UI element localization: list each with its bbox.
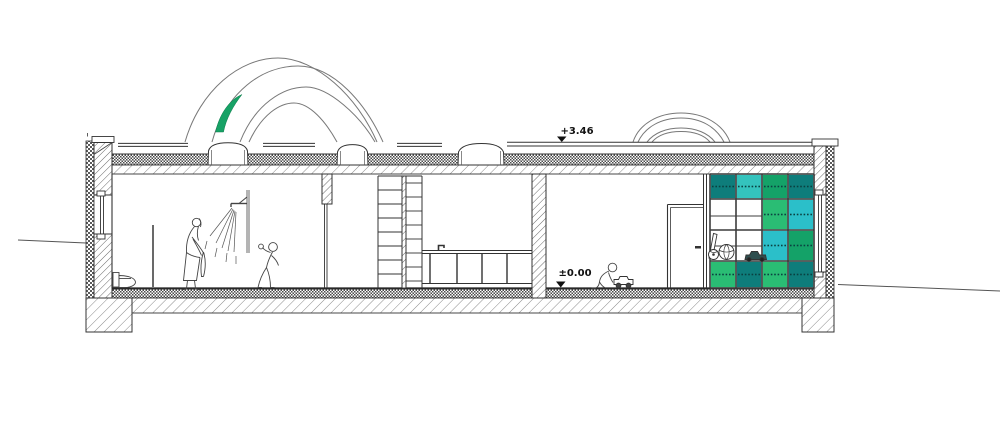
shelf-cell-dot xyxy=(793,245,795,247)
partition-1 xyxy=(322,174,332,288)
toilet xyxy=(113,273,136,288)
shelf-cell-dot xyxy=(804,245,806,247)
shelf-cell-dot xyxy=(726,274,728,276)
right-window xyxy=(815,190,823,277)
shelf-cell-dot xyxy=(715,186,717,188)
kitchen-counter xyxy=(422,246,532,289)
vault-arcs-right xyxy=(633,113,730,142)
shelf-cell-dot xyxy=(810,245,812,247)
shelf-cell-dot xyxy=(804,274,806,276)
shelf-cell-dot xyxy=(729,186,731,188)
left-window xyxy=(97,191,105,239)
shelf-cell-dot xyxy=(800,186,802,188)
baby-figure xyxy=(592,263,617,288)
shelf-cell-dot xyxy=(741,186,743,188)
shelf-cell-dot xyxy=(807,186,809,188)
shelf-cell-dot xyxy=(745,274,747,276)
shelf-cell-dot xyxy=(719,186,721,188)
shelf-cell-dot xyxy=(732,274,734,276)
shelf-cell-dot xyxy=(771,214,773,216)
shelf-cell-dot xyxy=(752,274,754,276)
shelf-cell-dot xyxy=(793,214,795,216)
shelf-cell-dot xyxy=(778,274,780,276)
shelf-cell-dot xyxy=(738,186,740,188)
shelf-cell-dot xyxy=(781,186,783,188)
shelf-cell-dot xyxy=(810,214,812,216)
child-figure xyxy=(258,243,279,288)
shelf-cell-dot xyxy=(719,274,721,276)
floor-level-label: ±0.00 xyxy=(558,268,591,279)
level-marker-floor: ±0.00 xyxy=(556,268,592,288)
shelf-cell-dot xyxy=(784,245,786,247)
shower xyxy=(205,190,249,264)
shelf-cell-dot xyxy=(797,186,799,188)
shelf-cell-dot xyxy=(764,245,766,247)
shelf-cell-dot xyxy=(804,214,806,216)
shelf-cell-dot xyxy=(771,245,773,247)
ladder-shelf xyxy=(378,176,422,288)
shelf-cell-dot xyxy=(778,186,780,188)
shelf-cell-dot xyxy=(807,274,809,276)
partition-2 xyxy=(532,174,546,298)
shelf-cell-dot xyxy=(758,274,760,276)
shelf-cell-dot xyxy=(781,245,783,247)
shelf-cell-dot xyxy=(781,214,783,216)
shelf-cell-dot xyxy=(764,274,766,276)
door xyxy=(668,174,707,288)
section-drawing: +3.46 ±0.00 xyxy=(0,0,1000,436)
shelf-cell-dot xyxy=(771,274,773,276)
shelf-cell-dot xyxy=(712,274,714,276)
shelf-cell-dot xyxy=(741,274,743,276)
shelf-cell-dot xyxy=(774,274,776,276)
shelf-cell-dot xyxy=(790,274,792,276)
left-footing xyxy=(86,298,132,332)
shelf-cell-dot xyxy=(748,274,750,276)
shelf-cell-dot xyxy=(800,274,802,276)
shelf-cell-dot xyxy=(738,274,740,276)
shelf-cell-dot xyxy=(781,274,783,276)
shelf-cell-dot xyxy=(784,274,786,276)
shelf-cell-dot xyxy=(767,274,769,276)
section-drawing-svg: +3.46 ±0.00 xyxy=(0,0,1000,436)
shelf-cell-dot xyxy=(771,186,773,188)
shelf-cell-dot xyxy=(804,186,806,188)
shelf-cell-dot xyxy=(810,186,812,188)
shelf-cell-dot xyxy=(767,214,769,216)
door-handle xyxy=(695,246,701,249)
shelf-cell-dot xyxy=(793,186,795,188)
roof-edge-segments xyxy=(118,143,442,146)
shelf-cell-dot xyxy=(758,186,760,188)
shelf-cell-dot xyxy=(745,186,747,188)
shelf-cell-dot xyxy=(715,274,717,276)
shelf-cell-dot xyxy=(784,214,786,216)
shelf-cell-dot xyxy=(732,186,734,188)
shelf-cell-dot xyxy=(755,186,757,188)
floor-slab xyxy=(86,288,834,332)
shelf-cell-dot xyxy=(726,186,728,188)
shelf-cell-dot xyxy=(778,214,780,216)
shelf-cell-dot xyxy=(767,186,769,188)
shelf-cell-dot xyxy=(797,245,799,247)
shower-spray xyxy=(205,208,236,264)
shelf-cell-dot xyxy=(755,274,757,276)
shelf-cell-dot xyxy=(790,245,792,247)
shelf-cell-dot xyxy=(807,214,809,216)
shelf-cell-dot xyxy=(774,214,776,216)
shelf-cell-dot xyxy=(797,214,799,216)
shelf-cell-dot xyxy=(774,186,776,188)
shelf-cell-dot xyxy=(752,186,754,188)
toy-truck xyxy=(614,277,633,288)
right-footing xyxy=(802,298,834,332)
shelf-cell-dot xyxy=(722,274,724,276)
shelf-cell-dot xyxy=(767,245,769,247)
vault-arcs-left xyxy=(185,58,383,142)
shelf-cell-dot xyxy=(722,186,724,188)
shelf-cell-dot xyxy=(729,274,731,276)
shelf-cell-dot xyxy=(800,245,802,247)
woman-figure xyxy=(183,218,206,290)
shelf-toys xyxy=(709,234,767,262)
level-marker-roof: +3.46 xyxy=(557,126,594,142)
shelf-cell-dot xyxy=(764,214,766,216)
shelf-cell-dot xyxy=(784,186,786,188)
shelf-cell-dot xyxy=(764,186,766,188)
shelf-cell-dot xyxy=(774,245,776,247)
shelf-cell-dot xyxy=(778,245,780,247)
ground-line-left xyxy=(18,240,86,243)
shelf-cell-dot xyxy=(810,274,812,276)
shelf-cell-dot xyxy=(800,214,802,216)
shelf-cell-dot xyxy=(790,214,792,216)
skylight-3 xyxy=(458,144,504,166)
skylight-1 xyxy=(208,143,248,165)
shelf-cell-dot xyxy=(748,186,750,188)
shelf-cell-dot xyxy=(807,245,809,247)
shelf-cell-dot xyxy=(797,274,799,276)
roof-level-label: +3.46 xyxy=(560,126,593,137)
ground-line-right xyxy=(838,285,1000,292)
skylight-2 xyxy=(337,145,368,165)
accent-lens xyxy=(216,95,243,133)
shelf-cell-dot xyxy=(790,186,792,188)
shelf-cell-dot xyxy=(712,186,714,188)
shelf-cell-dot xyxy=(793,274,795,276)
